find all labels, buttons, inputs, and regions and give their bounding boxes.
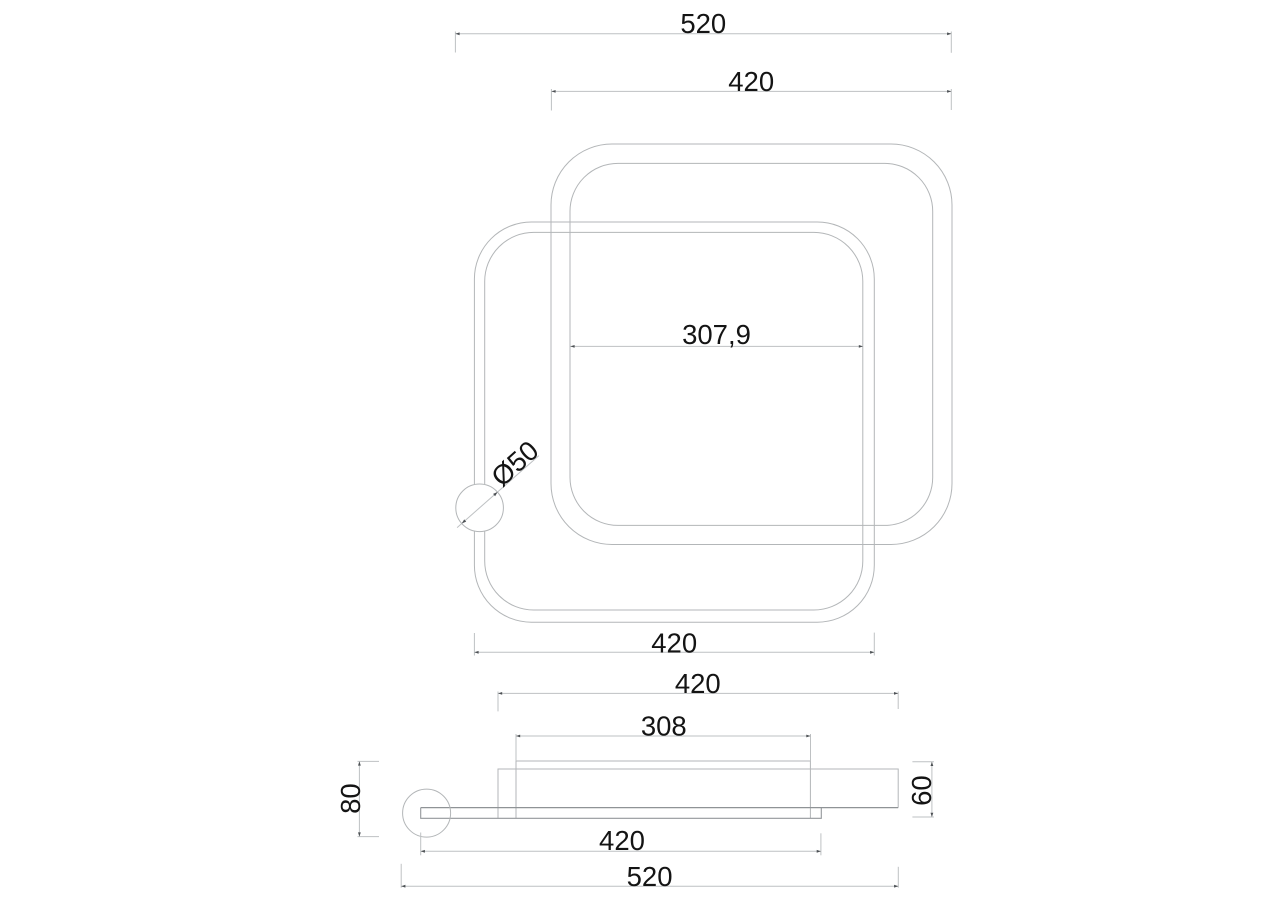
svg-text:520: 520 [680, 8, 726, 39]
svg-text:420: 420 [599, 825, 645, 856]
svg-text:60: 60 [906, 775, 937, 806]
svg-text:420: 420 [728, 66, 774, 97]
svg-text:308: 308 [641, 711, 687, 742]
svg-text:420: 420 [675, 668, 721, 699]
svg-text:420: 420 [651, 628, 697, 659]
svg-text:80: 80 [335, 783, 366, 814]
svg-text:520: 520 [627, 861, 673, 892]
svg-text:307,9: 307,9 [682, 319, 751, 350]
